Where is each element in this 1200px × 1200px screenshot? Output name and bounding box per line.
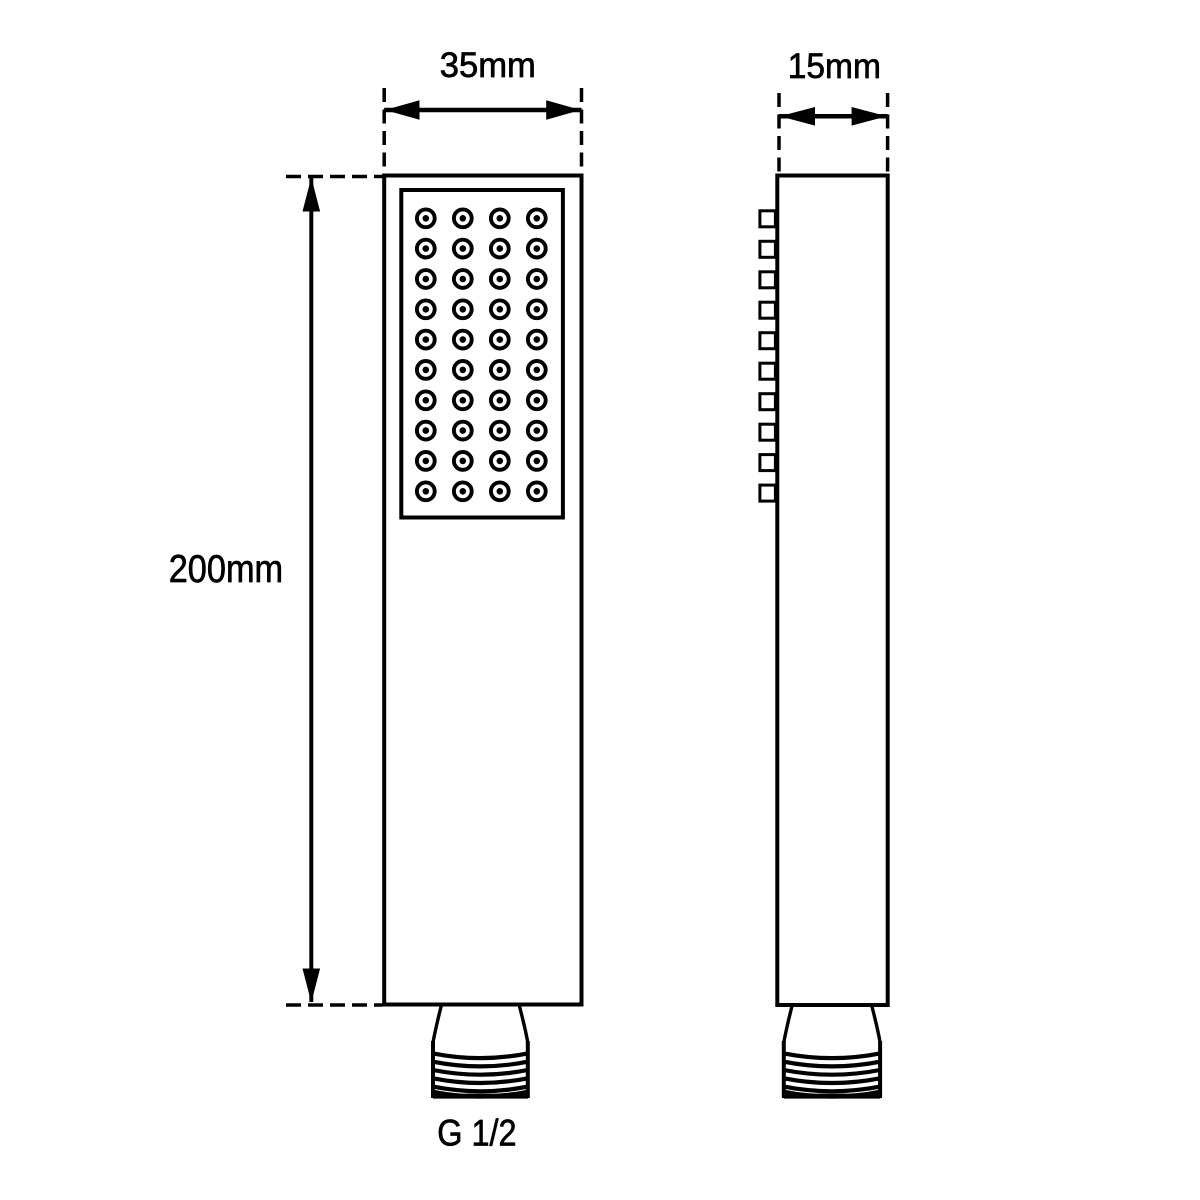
svg-text:200mm: 200mm: [169, 547, 283, 591]
svg-text:G 1/2: G 1/2: [437, 1113, 516, 1153]
svg-text:35mm: 35mm: [440, 46, 536, 85]
svg-text:15mm: 15mm: [788, 47, 881, 86]
